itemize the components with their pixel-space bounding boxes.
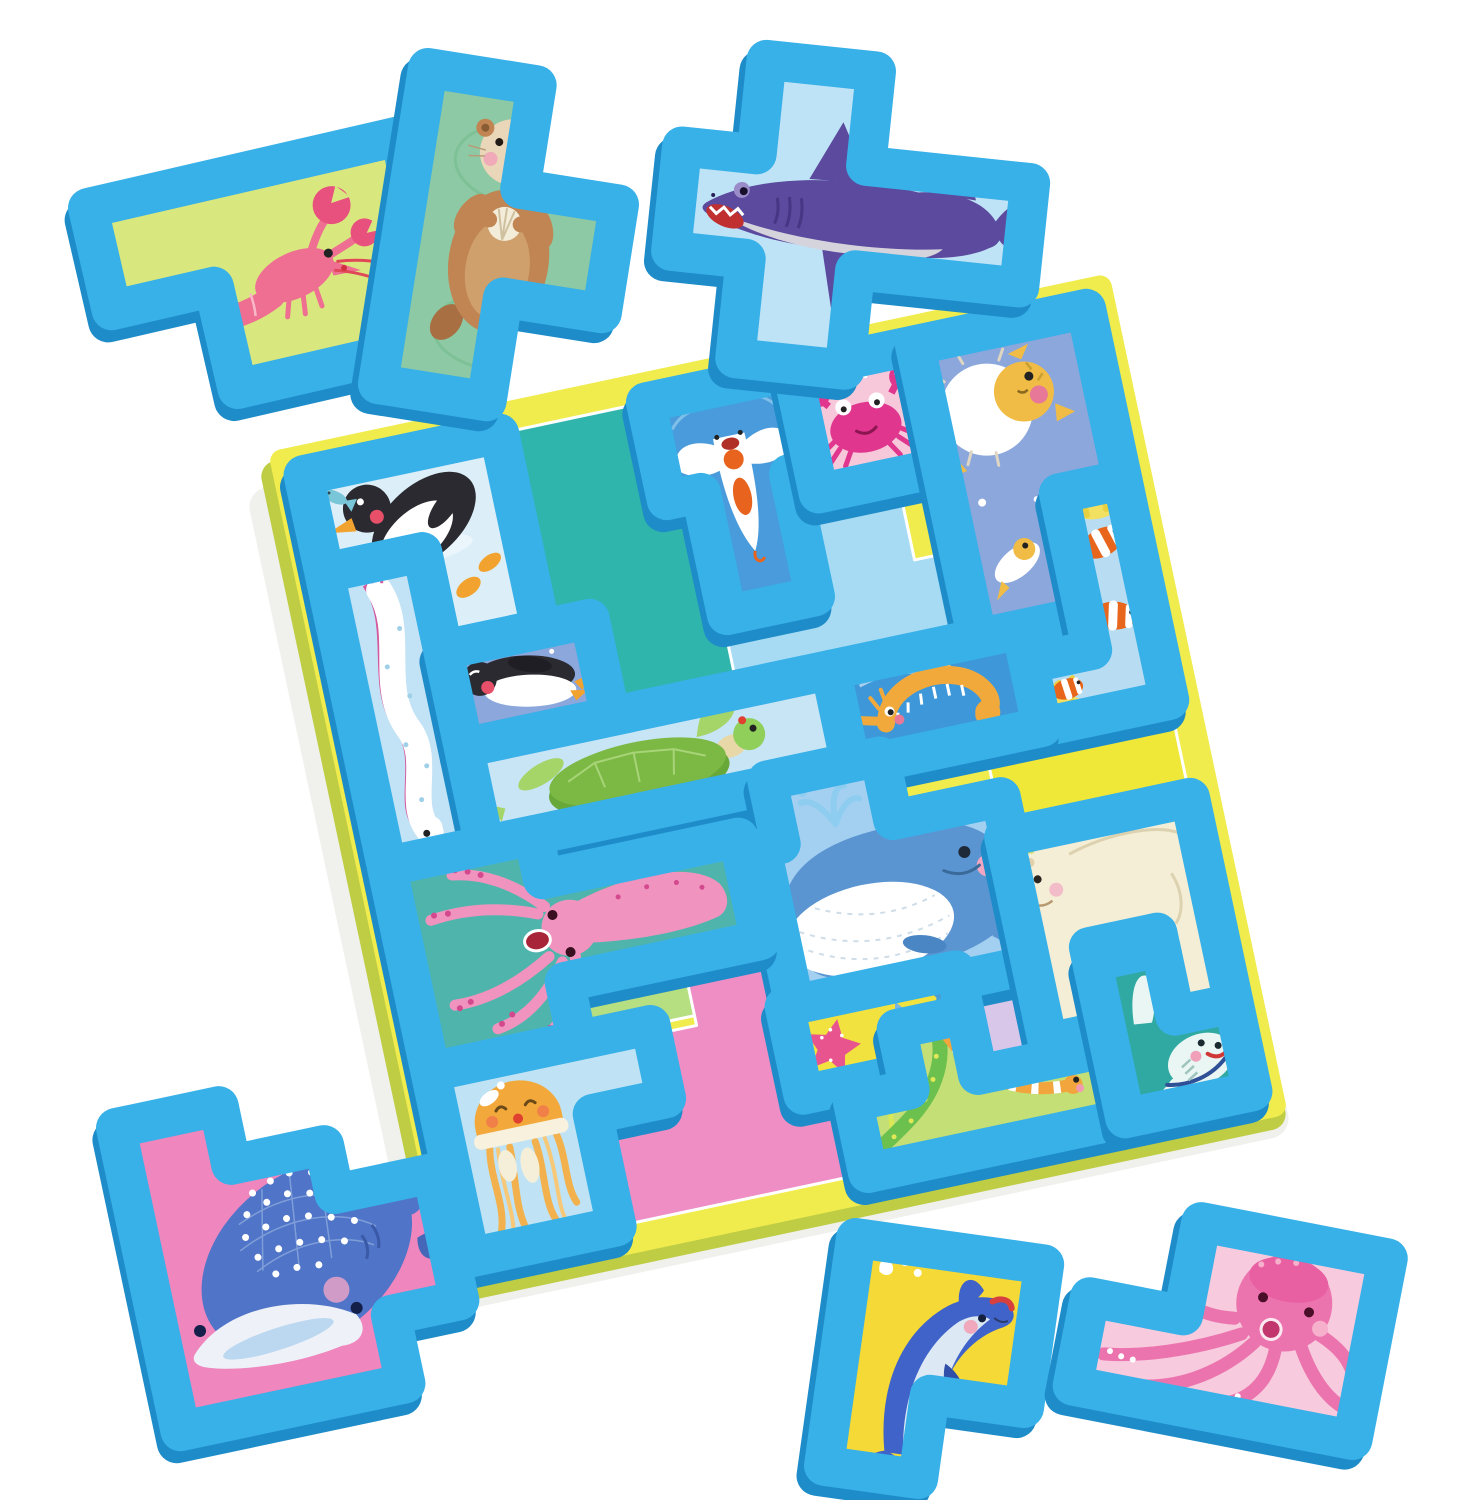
- puzzle-scene: [0, 0, 1474, 1500]
- puzzle-piece-sea-otter[interactable]: [370, 67, 635, 428]
- puzzle-piece-dolphin[interactable]: [817, 1237, 1045, 1500]
- product-photo: [0, 0, 1474, 1500]
- puzzle-piece-octopus[interactable]: [1065, 1203, 1388, 1451]
